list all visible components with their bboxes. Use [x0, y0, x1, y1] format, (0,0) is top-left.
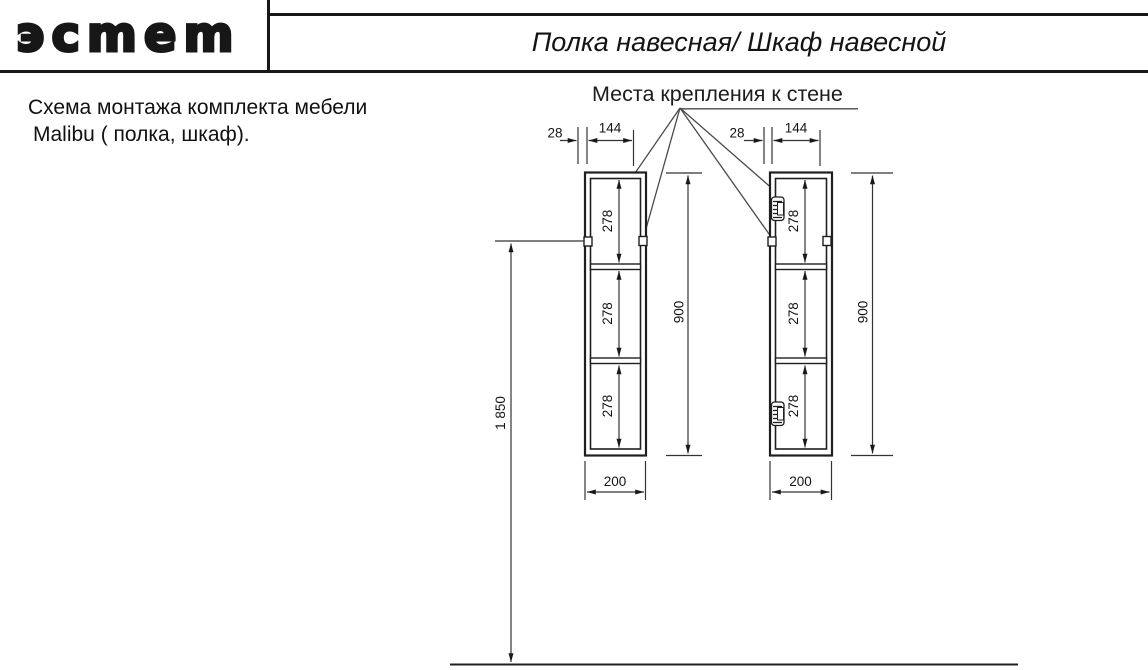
dim-label-hook-spacing: 144 — [599, 121, 622, 136]
dim-label-hook-inset: 28 — [729, 126, 744, 141]
dim-label-mount-height: 1 850 — [493, 396, 508, 430]
shelf-board — [776, 358, 827, 364]
dim-label-unit-height: 900 — [672, 301, 687, 324]
dim-label-section-height: 278 — [786, 210, 801, 233]
technical-drawing: 28 144 28 144 278 278 278 278 278 278 — [0, 0, 1148, 670]
door-hinge-bottom — [772, 402, 785, 426]
mount-height-dimension — [495, 241, 584, 662]
shelf-board — [776, 264, 827, 270]
dim-label-section-height: 278 — [786, 395, 801, 418]
dim-label-unit-height: 900 — [856, 301, 871, 324]
dim-label-section-height: 278 — [600, 395, 615, 418]
dim-label-hook-spacing: 144 — [785, 121, 808, 136]
wall-hook — [639, 237, 647, 246]
door-hinge-top — [772, 197, 785, 221]
dim-label-unit-width: 200 — [604, 474, 627, 489]
hook-position-dimensions-left — [560, 127, 634, 166]
dim-label-hook-inset: 28 — [547, 126, 562, 141]
dim-label-section-height: 278 — [600, 302, 615, 325]
wall-hook — [823, 237, 831, 246]
dim-label-section-height: 278 — [600, 210, 615, 233]
hook-position-dimensions-right — [744, 127, 820, 166]
shelf-board — [591, 264, 641, 270]
assembly-instruction-page: эсmem Полка навесная/ Шкаф навесной Схем… — [0, 0, 1148, 670]
dim-label-section-height: 278 — [786, 302, 801, 325]
wall-hook — [584, 237, 592, 246]
shelf-board — [591, 358, 641, 364]
wall-shelf-drawing — [584, 173, 647, 456]
dim-label-unit-width: 200 — [789, 474, 812, 489]
wall-hook — [768, 237, 776, 246]
